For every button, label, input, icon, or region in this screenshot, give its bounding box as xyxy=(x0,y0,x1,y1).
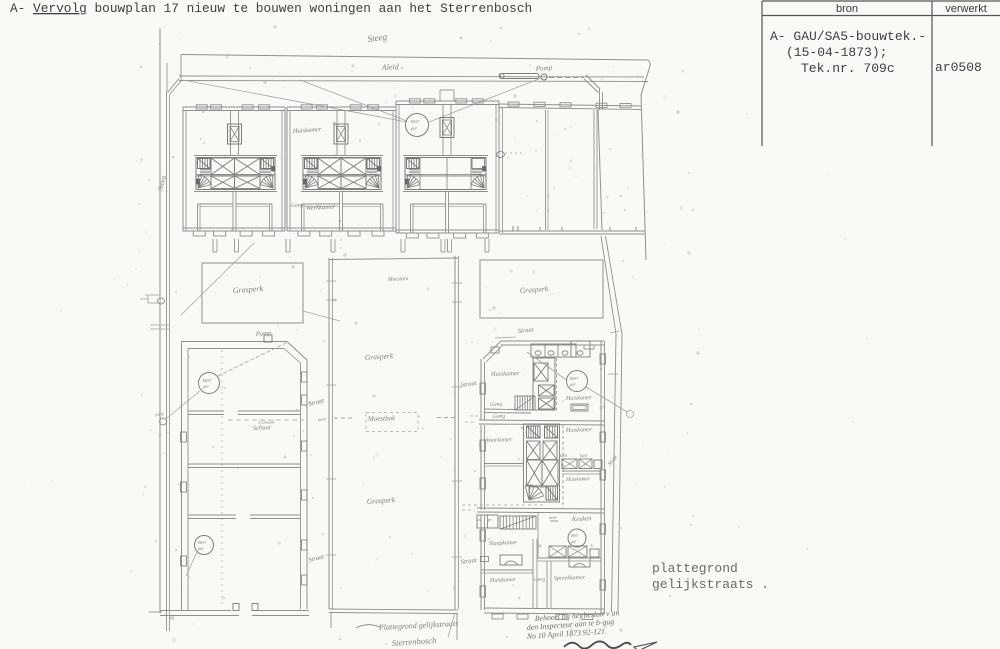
svg-text:ar0508: ar0508 xyxy=(935,60,982,75)
svg-text:kast: kast xyxy=(580,453,588,458)
svg-text:duim: duim xyxy=(549,515,557,520)
svg-text:Moestbak: Moestbak xyxy=(367,414,396,423)
svg-text:(15-04-1873);: (15-04-1873); xyxy=(786,45,887,60)
svg-text:Schuur: Schuur xyxy=(253,424,272,432)
svg-text:Huiskamer: Huiskamer xyxy=(489,577,517,584)
svg-text:Huiskamer: Huiskamer xyxy=(565,427,593,434)
svg-text:Beer: Beer xyxy=(203,377,212,383)
svg-text:Moestuin: Moestuin xyxy=(387,276,409,283)
svg-text:Huiskamer: Huiskamer xyxy=(490,370,520,378)
svg-text:put: put xyxy=(197,545,205,551)
svg-text:pr: pr xyxy=(487,517,492,522)
svg-text:put: put xyxy=(569,381,577,387)
svg-text:Beer: Beer xyxy=(411,118,420,124)
svg-text:Beer: Beer xyxy=(571,532,580,538)
svg-text:gelijkstraats .: gelijkstraats . xyxy=(652,577,769,592)
svg-text:Slaapkamer: Slaapkamer xyxy=(489,540,519,547)
svg-text:put: put xyxy=(410,125,418,131)
svg-text:Voorkamer: Voorkamer xyxy=(486,437,513,444)
svg-text:plattegrond: plattegrond xyxy=(652,561,738,576)
svg-text:k: k xyxy=(591,543,593,548)
svg-text:A- GAU/SA5-bouwtek.-: A- GAU/SA5-bouwtek.- xyxy=(770,29,926,44)
svg-text:verwerkt: verwerkt xyxy=(945,3,987,15)
svg-text:Pomp: Pomp xyxy=(534,64,552,74)
svg-text:oert: oert xyxy=(318,418,327,423)
svg-text:A- Vervolg bouwplan 17 nieuw t: A- Vervolg bouwplan 17 nieuw te bouwen w… xyxy=(10,1,532,16)
svg-text:Gang: Gang xyxy=(490,401,503,408)
svg-text:Spreekkamer: Spreekkamer xyxy=(554,575,586,582)
svg-text:Gang: Gang xyxy=(534,577,546,583)
svg-text:Beer: Beer xyxy=(198,539,207,545)
svg-text:Beer: Beer xyxy=(570,375,579,381)
svg-text:kast: kast xyxy=(560,453,568,458)
svg-text:Gang: Gang xyxy=(493,413,506,420)
svg-text:Gang: Gang xyxy=(291,202,304,209)
svg-text:Keuken: Keuken xyxy=(571,515,592,523)
svg-text:bron: bron xyxy=(836,3,858,15)
svg-text:Huiskamer: Huiskamer xyxy=(565,476,591,483)
svg-text:Aleid: Aleid xyxy=(381,62,400,72)
svg-text:Pomp: Pomp xyxy=(255,330,272,338)
svg-text:Tek.nr. 709c: Tek.nr. 709c xyxy=(801,61,895,76)
svg-text:Huiskamer: Huiskamer xyxy=(565,395,593,402)
svg-text:put: put xyxy=(202,383,210,389)
